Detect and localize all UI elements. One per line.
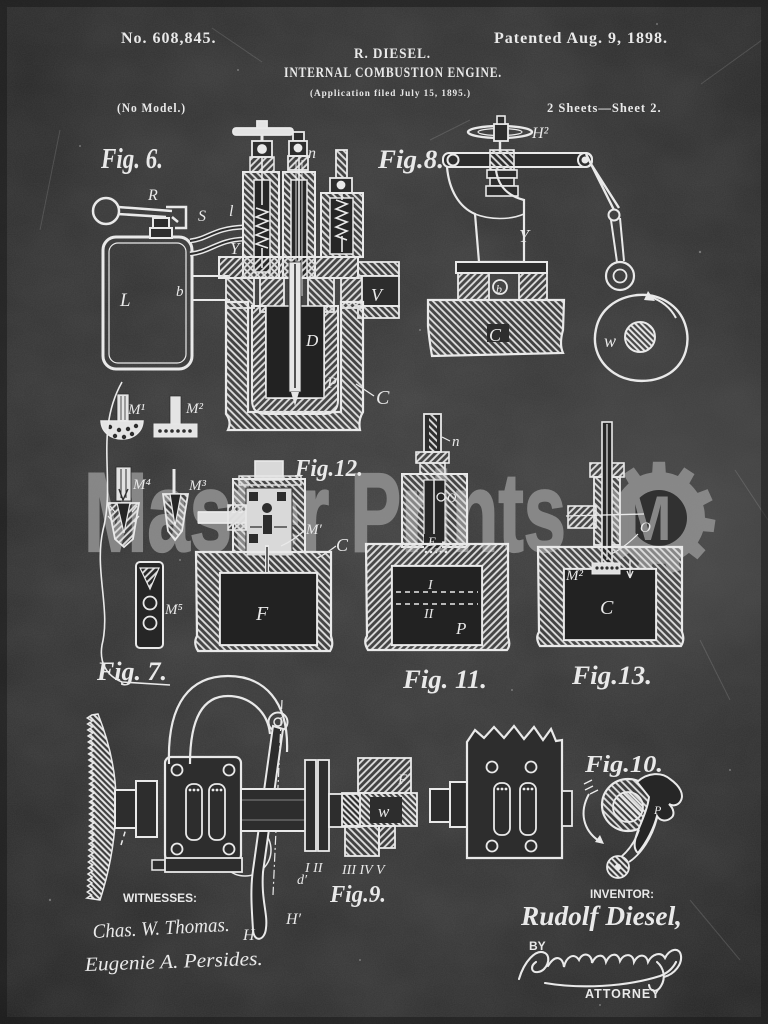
svg-text:C: C bbox=[336, 535, 349, 555]
svg-text:INTERNAL COMBUSTION ENGINE.: INTERNAL COMBUSTION ENGINE. bbox=[284, 65, 502, 81]
svg-text:ATTORNEY: ATTORNEY bbox=[585, 987, 661, 1001]
svg-text:M⁴: M⁴ bbox=[132, 477, 151, 493]
svg-text:l: l bbox=[229, 203, 234, 220]
svg-text:C: C bbox=[489, 325, 502, 345]
svg-text:w: w bbox=[378, 802, 390, 821]
svg-text:D: D bbox=[305, 331, 319, 350]
svg-text:P: P bbox=[455, 619, 466, 638]
svg-text:Fig. 6.: Fig. 6. bbox=[100, 144, 163, 175]
svg-text:M²: M² bbox=[565, 568, 583, 584]
svg-text:(No Model.): (No Model.) bbox=[117, 101, 186, 115]
svg-text:H²: H² bbox=[531, 125, 550, 142]
svg-text:n: n bbox=[452, 434, 460, 450]
svg-text:WITNESSES:: WITNESSES: bbox=[123, 891, 197, 905]
svg-text:Fig.13.: Fig.13. bbox=[571, 661, 652, 690]
svg-text:P: P bbox=[326, 375, 337, 392]
svg-text:III IV V: III IV V bbox=[341, 863, 386, 878]
svg-text:II: II bbox=[423, 607, 435, 622]
svg-text:M²: M² bbox=[185, 401, 203, 417]
svg-text:M′: M′ bbox=[305, 522, 322, 538]
svg-text:P: P bbox=[653, 803, 662, 817]
svg-text:2 Sheets—Sheet 2.: 2 Sheets—Sheet 2. bbox=[547, 101, 662, 115]
svg-text:M: M bbox=[625, 484, 672, 554]
svg-text:BY: BY bbox=[529, 939, 546, 953]
svg-text:L: L bbox=[119, 290, 131, 311]
svg-text:Fig.8.: Fig.8. bbox=[377, 145, 444, 174]
svg-text:F: F bbox=[397, 772, 408, 788]
svg-text:b: b bbox=[496, 282, 502, 296]
svg-text:R. DIESEL.: R. DIESEL. bbox=[354, 46, 431, 62]
svg-text:C: C bbox=[376, 387, 390, 409]
svg-text:H′: H′ bbox=[285, 911, 302, 928]
svg-text:O: O bbox=[447, 490, 457, 505]
svg-text:(Application filed July 15, 18: (Application filed July 15, 1895.) bbox=[310, 88, 471, 99]
svg-text:I II: I II bbox=[304, 861, 324, 876]
svg-text:Fig. 7.: Fig. 7. bbox=[96, 657, 167, 686]
svg-text:R: R bbox=[147, 187, 158, 204]
svg-text:M³: M³ bbox=[188, 478, 206, 494]
svg-text:Y: Y bbox=[230, 239, 241, 258]
svg-text:Patented Aug. 9, 1898.: Patented Aug. 9, 1898. bbox=[494, 30, 668, 47]
svg-text:Fig.9.: Fig.9. bbox=[329, 882, 386, 908]
svg-text:M¹: M¹ bbox=[127, 402, 145, 418]
svg-text:Fig. 11.: Fig. 11. bbox=[402, 665, 487, 694]
svg-text:n: n bbox=[308, 145, 316, 162]
svg-text:H: H bbox=[242, 927, 256, 944]
svg-text:b: b bbox=[176, 284, 184, 300]
svg-text:F: F bbox=[255, 603, 269, 625]
svg-text:INVENTOR:: INVENTOR: bbox=[590, 887, 654, 901]
svg-text:C: C bbox=[600, 597, 614, 619]
svg-text:Rudolf Diesel,: Rudolf Diesel, bbox=[520, 901, 682, 931]
svg-text:O: O bbox=[640, 520, 651, 536]
svg-text:S: S bbox=[198, 208, 206, 225]
svg-text:w: w bbox=[604, 331, 616, 351]
svg-text:M⁵: M⁵ bbox=[164, 602, 183, 618]
svg-text:No. 608,845.: No. 608,845. bbox=[121, 30, 217, 47]
